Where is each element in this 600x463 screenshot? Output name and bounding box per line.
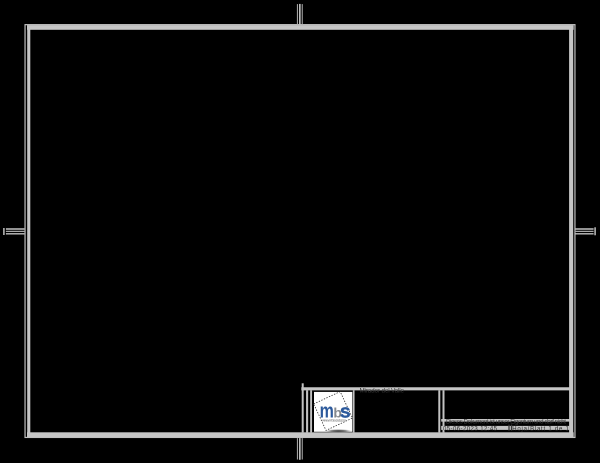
svg-text:Dieses Dokument ist unser Eige: Dieses Dokument ist unser Eigentum und d… [446, 418, 566, 425]
svg-text:Hoja/Blatt 1 de 1: Hoja/Blatt 1 de 1 [512, 426, 569, 432]
svg-text:05-06-2023 12:45: 05-06-2023 12:45 [443, 426, 498, 432]
svg-text:Mirador del Valle: Mirador del Valle [360, 388, 405, 395]
svg-text:www.mbs-cad.com: www.mbs-cad.com [322, 417, 347, 422]
